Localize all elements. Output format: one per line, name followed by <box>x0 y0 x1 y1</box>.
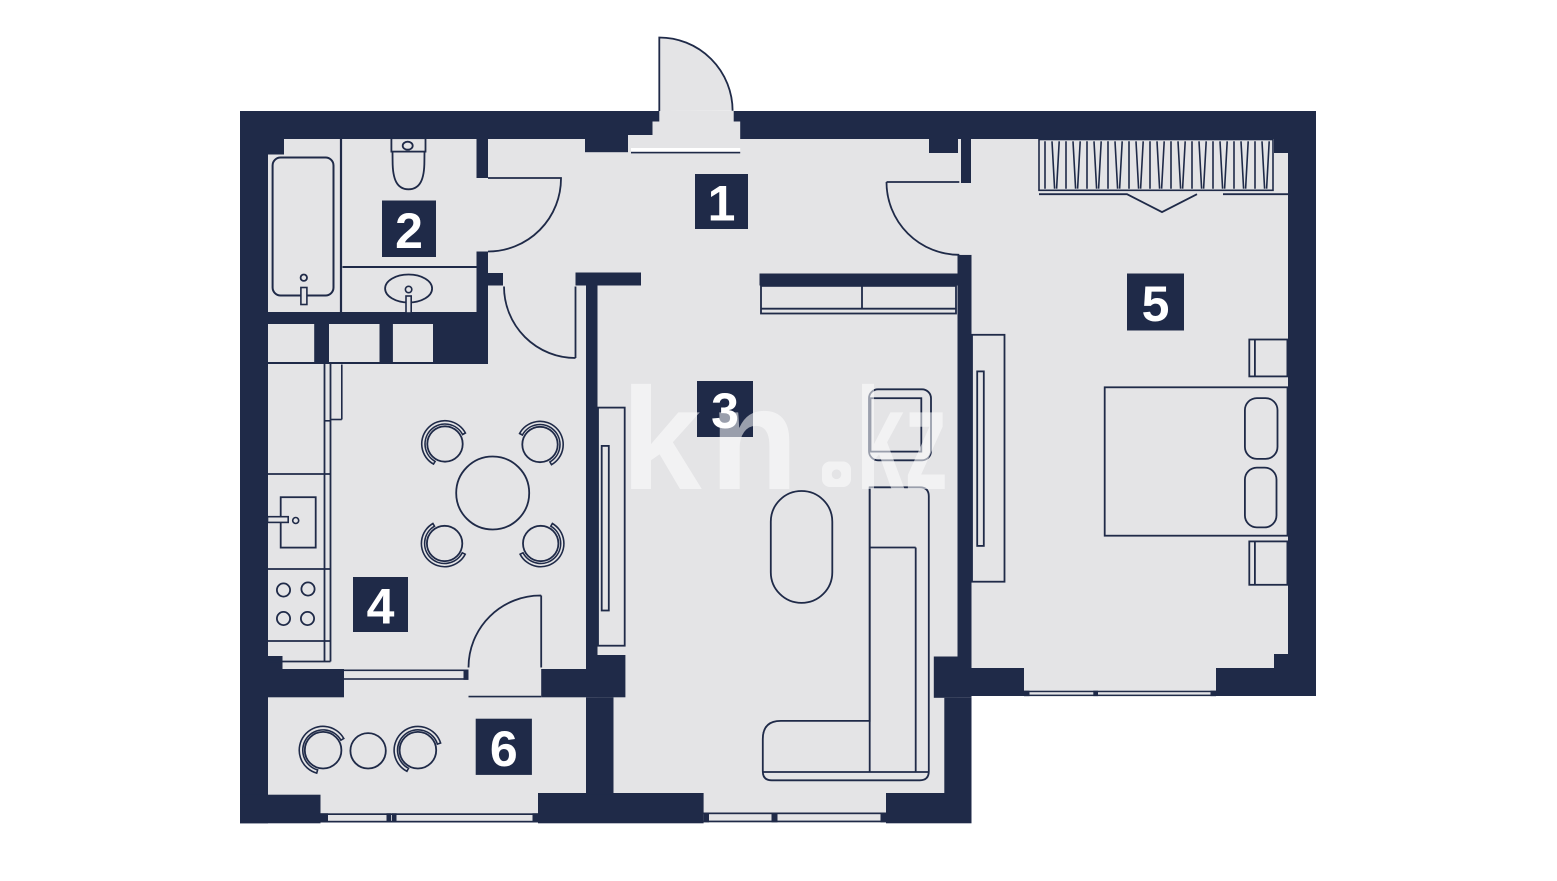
svg-text:6: 6 <box>490 721 518 777</box>
svg-text:5: 5 <box>1142 276 1170 332</box>
svg-text:2: 2 <box>395 203 423 259</box>
svg-text:kz: kz <box>856 359 948 520</box>
svg-text:1: 1 <box>708 176 736 232</box>
svg-text:kn: kn <box>621 358 806 520</box>
svg-text:4: 4 <box>367 579 395 635</box>
